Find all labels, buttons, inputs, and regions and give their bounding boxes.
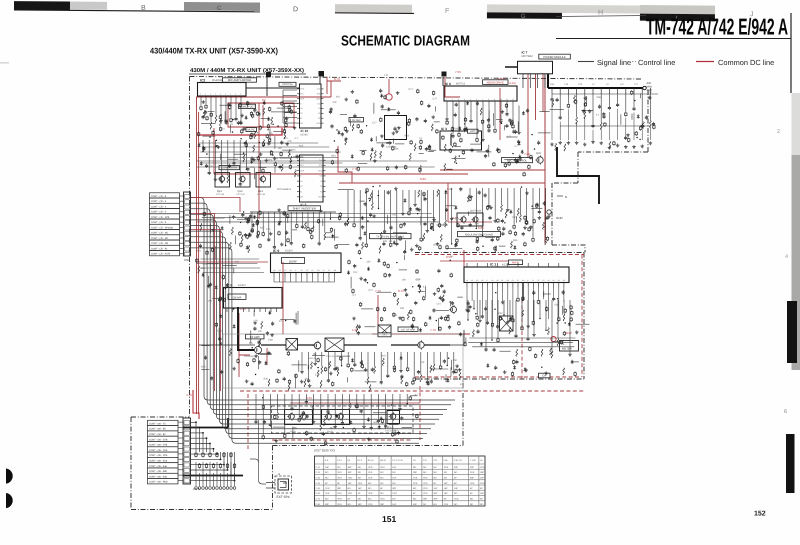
svg-text:100: 100	[258, 330, 263, 333]
svg-text:NO: NO	[358, 466, 362, 469]
svg-text:EXT SP4: EXT SP4	[277, 495, 290, 499]
svg-text:o: o	[210, 94, 211, 96]
svg-text:C77: C77	[372, 121, 377, 124]
svg-text:R45: R45	[374, 421, 379, 424]
svg-text:3: 3	[458, 98, 459, 101]
svg-text:D2 3: D2 3	[358, 459, 363, 462]
svg-text:NO: NO	[392, 482, 396, 485]
svg-text:NO: NO	[325, 477, 329, 480]
svg-text:Q20: Q20	[536, 152, 541, 155]
svg-text:NO: NO	[380, 482, 384, 485]
svg-text:CONT - (06 - DT8: CONT - (06 - DT8	[149, 444, 168, 447]
svg-text:D19: D19	[566, 331, 572, 335]
svg-text:47P: 47P	[253, 320, 258, 323]
svg-text:NO: NO	[348, 487, 352, 490]
svg-text:C77: C77	[433, 97, 438, 100]
svg-text:SCL: SCL	[300, 93, 304, 96]
svg-text:R23: R23	[331, 155, 336, 158]
svg-text:YES: YES	[423, 482, 428, 485]
svg-text:100: 100	[291, 148, 296, 151]
svg-text:151: 151	[382, 514, 396, 524]
svg-text:C-41: C-41	[316, 482, 322, 485]
svg-text:CONT - (J5 - MC: CONT - (J5 - MC	[151, 237, 169, 240]
svg-text:o: o	[220, 94, 221, 96]
svg-text:H: H	[598, 9, 603, 16]
svg-text:NO: NO	[348, 503, 352, 506]
svg-text:Common DC line: Common DC line	[718, 58, 774, 67]
svg-text:8: 8	[488, 98, 489, 101]
svg-text:YES: YES	[413, 477, 418, 480]
svg-text:NO: NO	[423, 471, 427, 474]
svg-text:KC407: KC407	[285, 250, 293, 253]
svg-text:4: 4	[464, 98, 465, 101]
svg-text:C1 4 12 20: C1 4 12 20	[392, 459, 403, 462]
svg-text:C-61: C-61	[316, 492, 322, 495]
svg-text:30P: 30P	[423, 498, 427, 501]
svg-text:IC 7: IC 7	[522, 51, 528, 55]
svg-text:16P: 16P	[358, 487, 362, 490]
svg-text:TM45: TM45	[327, 430, 334, 433]
svg-text:M57788M: M57788M	[522, 55, 533, 58]
svg-text:NO: NO	[423, 466, 427, 469]
svg-text:M57713: M57713	[456, 83, 466, 86]
svg-text:NO: NO	[413, 466, 417, 469]
svg-text:R6 10: R6 10	[380, 459, 387, 462]
svg-text:C77: C77	[315, 374, 320, 377]
svg-text:C4 3: C4 3	[337, 459, 342, 462]
svg-text:GND: GND	[318, 170, 323, 173]
svg-text:VCO: VCO	[300, 159, 305, 162]
svg-text:NO: NO	[368, 482, 372, 485]
svg-text:8.7V: 8.7V	[398, 289, 404, 293]
svg-text:C68: C68	[555, 303, 560, 306]
svg-text:30P: 30P	[337, 487, 341, 490]
svg-text:C68: C68	[268, 339, 273, 342]
svg-text:R45: R45	[513, 239, 518, 242]
svg-text:Signal line: Signal line	[597, 58, 631, 67]
svg-text:YES: YES	[423, 492, 428, 495]
svg-text:CONT - (J5 - 8: CONT - (J5 - 8	[151, 221, 167, 224]
svg-text:6: 6	[476, 98, 477, 101]
svg-text:CONT - (06 - 5q8: CONT - (06 - 5q8	[149, 465, 167, 468]
svg-text:YES: YES	[368, 466, 373, 469]
svg-text:16P: 16P	[444, 487, 448, 490]
svg-text:10K: 10K	[420, 361, 425, 364]
svg-text:NO: NO	[433, 477, 437, 480]
svg-text:CONT - (J5 - GB: CONT - (J5 - GB	[151, 242, 169, 245]
svg-text:YES: YES	[368, 492, 373, 495]
svg-text:CH: CH	[542, 374, 546, 378]
svg-text:CL: CL	[323, 269, 325, 272]
svg-text:C30 114: C30 114	[454, 459, 463, 462]
svg-text:C: C	[217, 5, 222, 12]
svg-text:CONT - (06 - 54B: CONT - (06 - 54B	[149, 475, 167, 478]
svg-text:CONT - (06 - CK8: CONT - (06 - CK8	[149, 449, 168, 452]
svg-text:NO: NO	[358, 471, 362, 474]
svg-text:o: o	[225, 94, 226, 96]
svg-text:R45: R45	[260, 226, 265, 229]
svg-text:430/440M TX-RX UNIT (X57-3590-: 430/440M TX-RX UNIT (X57-3590-XX)	[150, 47, 278, 56]
svg-text:B: B	[141, 5, 146, 12]
svg-text:FILTER: FILTER	[352, 119, 361, 122]
svg-text:C-21: C-21	[316, 471, 322, 474]
svg-text:9: 9	[494, 98, 495, 101]
svg-text:F: F	[445, 8, 449, 15]
svg-text:C12: C12	[250, 166, 255, 169]
svg-text:GND: GND	[316, 98, 321, 101]
svg-text:YES: YES	[380, 466, 385, 469]
svg-text:NO: NO	[454, 503, 458, 506]
svg-text:IC 9: IC 9	[273, 249, 279, 253]
svg-text:30P: 30P	[380, 503, 384, 506]
svg-text:C12: C12	[447, 188, 452, 191]
svg-text:NO: NO	[392, 498, 396, 501]
svg-text:12: 12	[512, 98, 514, 101]
svg-text:NO: NO	[358, 498, 362, 501]
svg-text:DTC144: DTC144	[237, 193, 246, 196]
svg-text:BUNF: BUNF	[289, 259, 297, 263]
svg-text:o: o	[230, 94, 231, 96]
svg-text:R45: R45	[200, 267, 205, 270]
svg-text:C12: C12	[203, 263, 208, 266]
svg-text:NO: NO	[380, 471, 384, 474]
svg-text:o: o	[215, 94, 216, 96]
svg-text:7.2V: 7.2V	[524, 152, 530, 156]
svg-text:TM-742 A/742 E/942 A: TM-742 A/742 E/942 A	[646, 14, 788, 40]
svg-text:NO: NO	[337, 466, 341, 469]
svg-text:R23: R23	[235, 261, 240, 264]
svg-text:D: D	[293, 6, 298, 13]
svg-text:L14: L14	[352, 294, 357, 297]
svg-text:NO: NO	[433, 503, 437, 506]
svg-text:R45: R45	[201, 365, 206, 368]
svg-text:YES: YES	[423, 487, 428, 490]
svg-text:Q19 TM45: Q19 TM45	[470, 210, 482, 213]
svg-text:47P: 47P	[460, 383, 465, 386]
svg-text:16P: 16P	[325, 466, 329, 469]
svg-text:KC407: KC407	[238, 284, 246, 287]
svg-text:KBOW DRIVE: KBOW DRIVE	[487, 81, 504, 84]
svg-text:VDD: VDD	[318, 196, 323, 199]
svg-text:YES: YES	[368, 477, 373, 480]
svg-text:IC 1: IC 1	[490, 263, 496, 267]
svg-text:16P: 16P	[433, 487, 437, 490]
svg-text:30P: 30P	[413, 503, 417, 506]
svg-text:CONT - (J5 - ALTB: CONT - (J5 - ALTB	[151, 253, 171, 256]
svg-text:NO: NO	[444, 471, 448, 474]
svg-text:YES: YES	[337, 471, 342, 474]
svg-text:6.8V: 6.8V	[478, 226, 484, 230]
svg-text:YES: YES	[444, 466, 449, 469]
svg-text:NO: NO	[480, 503, 484, 506]
svg-text:NO: NO	[368, 487, 372, 490]
svg-text:30P: 30P	[480, 471, 484, 474]
svg-text:IC 3: IC 3	[441, 127, 447, 131]
svg-text:T-R: T-R	[384, 74, 388, 77]
svg-text:16P: 16P	[444, 482, 448, 485]
svg-text:4: 4	[785, 254, 788, 260]
svg-text:YES: YES	[337, 477, 342, 480]
svg-text:NO: NO	[358, 477, 362, 480]
svg-text:YES: YES	[470, 482, 475, 485]
svg-text:430M / 440M TX-RX UNIT (X57-: 430M / 440M TX-RX UNIT (X57-359X-XX)	[190, 67, 304, 74]
svg-text:CST OF AMP: CST OF AMP	[401, 328, 416, 331]
svg-text:16P: 16P	[392, 503, 396, 506]
svg-text:7.7V: 7.7V	[430, 328, 436, 332]
svg-text:C12: C12	[647, 91, 652, 94]
svg-text:NO: NO	[368, 498, 372, 501]
svg-text:16P: 16P	[480, 477, 484, 480]
svg-text:30P: 30P	[433, 492, 437, 495]
svg-text:CONT - (J5 - 5: CONT - (J5 - 5	[151, 211, 167, 214]
svg-text:YES: YES	[358, 482, 363, 485]
svg-text:30P: 30P	[470, 477, 474, 480]
svg-text:16P: 16P	[480, 492, 484, 495]
svg-text:YES: YES	[348, 477, 353, 480]
svg-text:C-51: C-51	[316, 487, 322, 490]
svg-text:CONT - (06 - 8D: CONT - (06 - 8D	[149, 428, 166, 431]
svg-text:M54959L: M54959L	[212, 79, 223, 82]
svg-text:APC: APC	[470, 130, 475, 133]
svg-text:YES: YES	[423, 477, 428, 480]
svg-text:YES: YES	[470, 471, 475, 474]
svg-text:R45: R45	[264, 377, 269, 380]
svg-text:10K: 10K	[400, 307, 405, 310]
svg-text:G: G	[521, 13, 526, 20]
svg-text:100: 100	[304, 378, 309, 381]
svg-text:CL: CL	[512, 279, 514, 282]
svg-text:7: 7	[482, 98, 483, 101]
svg-text:YES: YES	[454, 498, 459, 501]
svg-text:C12: C12	[455, 217, 460, 220]
svg-text:NO: NO	[413, 487, 417, 490]
svg-text:5: 5	[470, 98, 471, 101]
svg-text:DTC144: DTC144	[216, 193, 225, 196]
svg-text:ST: ST	[517, 279, 519, 282]
svg-text:C77: C77	[279, 320, 284, 323]
svg-text:C-11: C-11	[316, 466, 321, 469]
svg-text:GND: GND	[556, 216, 564, 220]
svg-text:Control line: Control line	[638, 58, 675, 67]
svg-text:16P: 16P	[454, 487, 458, 490]
svg-text:YES: YES	[392, 492, 397, 495]
svg-text:30P: 30P	[325, 503, 329, 506]
svg-text:NO: NO	[444, 477, 448, 480]
svg-text:DE-MF: DE-MF	[233, 295, 242, 299]
svg-text:C77: C77	[369, 289, 374, 292]
svg-text:(6.8V): (6.8V)	[509, 82, 516, 85]
svg-text:10K: 10K	[254, 132, 259, 135]
svg-text:CONT - (J5 - MC: CONT - (J5 - MC	[151, 232, 169, 235]
svg-text:7.5V: 7.5V	[455, 70, 461, 74]
svg-text:.001: .001	[208, 299, 213, 302]
svg-text:IC 10: IC 10	[301, 129, 309, 133]
svg-text:YES: YES	[337, 498, 342, 501]
svg-text:YES: YES	[325, 487, 330, 490]
svg-text:o: o	[200, 94, 201, 96]
svg-text:YES: YES	[337, 492, 342, 495]
svg-text:C12: C12	[266, 228, 271, 231]
svg-text:5V: 5V	[262, 98, 266, 102]
svg-text:B: B	[565, 195, 567, 199]
svg-text:Q13: Q13	[238, 190, 243, 193]
svg-text:YES: YES	[337, 503, 342, 506]
svg-text:YES: YES	[480, 482, 485, 485]
svg-text:NO: NO	[380, 477, 384, 480]
svg-text:NO: NO	[380, 492, 384, 495]
svg-text:YES: YES	[413, 482, 418, 485]
svg-text:30P: 30P	[413, 471, 417, 474]
svg-text:R23: R23	[405, 135, 410, 138]
svg-text:30P: 30P	[358, 503, 362, 506]
svg-text:C68: C68	[597, 96, 602, 99]
svg-text:VCO: VCO	[300, 88, 305, 91]
svg-text:C-81: C-81	[316, 503, 322, 506]
svg-text:C77: C77	[507, 136, 512, 139]
svg-text:NO: NO	[470, 498, 474, 501]
svg-text:YES: YES	[368, 503, 373, 506]
svg-text:CONT - (J5 - 9: CONT - (J5 - 9	[151, 200, 167, 203]
svg-text:2: 2	[452, 98, 453, 101]
svg-text:Q13: Q13	[258, 190, 263, 193]
svg-text:Q6: Q6	[293, 426, 297, 430]
svg-text:o: o	[235, 94, 236, 96]
svg-text:CONT - (J5 - SPSW8: CONT - (J5 - SPSW8	[151, 226, 174, 229]
svg-text:0.2V: 0.2V	[420, 177, 426, 181]
svg-text:100: 100	[475, 223, 480, 226]
svg-text:IC2: IC2	[200, 79, 205, 83]
svg-text:30P: 30P	[348, 466, 352, 469]
svg-text:C12: C12	[416, 279, 421, 282]
svg-text:C-71: C-71	[316, 498, 322, 501]
svg-text:6: 6	[784, 409, 787, 415]
svg-text:C77: C77	[409, 88, 414, 91]
svg-text:C-31: C-31	[316, 477, 322, 480]
svg-text:IC 6: IC 6	[445, 82, 451, 86]
svg-text:NO: NO	[433, 466, 437, 469]
svg-text:30P: 30P	[454, 466, 458, 469]
svg-text:CONT - (06 - CP8: CONT - (06 - CP8	[149, 454, 168, 457]
svg-text:KC407: KC407	[301, 134, 309, 137]
svg-text:16P: 16P	[348, 482, 352, 485]
svg-text:NO: NO	[454, 492, 458, 495]
svg-text:CONT - (06 - RD8: CONT - (06 - RD8	[149, 481, 168, 484]
svg-text:152: 152	[754, 511, 766, 518]
svg-text:NO: NO	[470, 503, 474, 506]
svg-text:YES: YES	[444, 503, 449, 506]
svg-text:YES: YES	[480, 466, 485, 469]
svg-text:STC144A×5: STC144A×5	[277, 188, 292, 191]
svg-text:47P: 47P	[208, 165, 213, 168]
svg-text:1: 1	[446, 98, 447, 101]
svg-text:o: o	[240, 94, 241, 96]
svg-text:R6 16: R6 16	[368, 459, 375, 462]
svg-text:10K: 10K	[394, 148, 399, 151]
svg-text:.001: .001	[392, 214, 397, 217]
svg-text:30P: 30P	[433, 498, 437, 501]
svg-text:C68: C68	[433, 377, 438, 380]
svg-text:30P: 30P	[348, 471, 352, 474]
svg-text:30P: 30P	[392, 487, 396, 490]
svg-text:Q13: Q13	[217, 190, 222, 193]
svg-text:MIC AMP LIMITER: MIC AMP LIMITER	[228, 78, 252, 82]
svg-text:YES: YES	[325, 492, 330, 495]
svg-text:DTC144: DTC144	[257, 193, 266, 196]
svg-text:CONT - (J5 - SPB: CONT - (J5 - SPB	[151, 216, 170, 219]
svg-text:16P: 16P	[444, 492, 448, 495]
svg-text:10K: 10K	[278, 147, 283, 150]
svg-text:4.7V: 4.7V	[186, 393, 192, 397]
svg-text:C12: C12	[353, 271, 358, 274]
svg-text:CONT - (J5 - RL: CONT - (J5 - RL	[151, 247, 168, 250]
svg-text:NO: NO	[413, 498, 417, 501]
svg-text:.001: .001	[335, 96, 340, 99]
svg-text:CONT - (06 - DTB: CONT - (06 - DTB	[149, 438, 168, 441]
svg-text:VCO PLL: VCO PLL	[282, 83, 294, 86]
svg-text:10K: 10K	[402, 278, 407, 281]
svg-text:47P: 47P	[287, 140, 292, 143]
svg-text:RF AMP: RF AMP	[250, 336, 260, 339]
svg-text:16P: 16P	[392, 477, 396, 480]
svg-text:CN2: CN2	[184, 258, 190, 262]
svg-text:CONT - (06 - 5C8: CONT - (06 - 5C8	[149, 460, 168, 463]
svg-text:DR - 12: DR - 12	[383, 240, 392, 243]
svg-text:L14: L14	[437, 303, 442, 306]
svg-text:.001: .001	[267, 159, 272, 162]
svg-text:VDD: VDD	[316, 122, 321, 125]
svg-text:.001: .001	[381, 355, 386, 358]
svg-text:30P: 30P	[470, 466, 474, 469]
svg-text:8.7V: 8.7V	[334, 77, 340, 81]
svg-text:8.4V: 8.4V	[306, 396, 312, 400]
svg-text:(X57 3590 XX): (X57 3590 XX)	[314, 449, 335, 453]
svg-text:C68: C68	[217, 330, 222, 333]
svg-text:10: 10	[500, 98, 502, 101]
svg-text:CONT - (06 - 58D: CONT - (06 - 58D	[149, 470, 167, 473]
svg-text:2: 2	[777, 129, 780, 135]
svg-text:CONT - (J5 - 8: CONT - (J5 - 8	[151, 195, 167, 198]
svg-text:NO: NO	[454, 471, 458, 474]
svg-text:NO: NO	[423, 503, 427, 506]
svg-text:R45: R45	[299, 144, 304, 147]
svg-text:NO: NO	[433, 471, 437, 474]
svg-text:SCHEMATIC DIAGRAM: SCHEMATIC DIAGRAM	[341, 34, 470, 50]
svg-text:YES: YES	[380, 498, 385, 501]
svg-text:C 100: C 100	[470, 459, 477, 462]
svg-text:METER: METER	[562, 347, 572, 351]
svg-text:L14: L14	[394, 429, 399, 432]
svg-text:CF2: CF2	[498, 312, 503, 315]
svg-text:16P: 16P	[392, 466, 396, 469]
svg-text:MOL/LOW SWITCHING: MOL/LOW SWITCHING	[465, 234, 493, 237]
svg-text:NO: NO	[392, 471, 396, 474]
svg-text:NO: NO	[325, 471, 329, 474]
svg-text:47P: 47P	[332, 101, 337, 104]
svg-text:CONT - (J5 - 4: CONT - (J5 - 4	[151, 205, 167, 208]
svg-text:o: o	[205, 94, 206, 96]
svg-text:NO: NO	[325, 498, 329, 501]
svg-text:100: 100	[443, 223, 448, 226]
svg-text:SHIFT REGISTER: SHIFT REGISTER	[293, 206, 316, 210]
svg-text:CONT - (06 - 8C: CONT - (06 - 8C	[149, 433, 166, 436]
svg-text:.001: .001	[196, 250, 201, 253]
svg-text:10K: 10K	[453, 359, 458, 362]
svg-text:CONT - (06 - TU: CONT - (06 - TU	[149, 422, 166, 425]
svg-text:100: 100	[366, 261, 371, 264]
svg-text:POWER MODULE: POWER MODULE	[543, 56, 566, 59]
svg-text:TM45: TM45	[290, 430, 297, 433]
svg-text:YES: YES	[368, 471, 373, 474]
